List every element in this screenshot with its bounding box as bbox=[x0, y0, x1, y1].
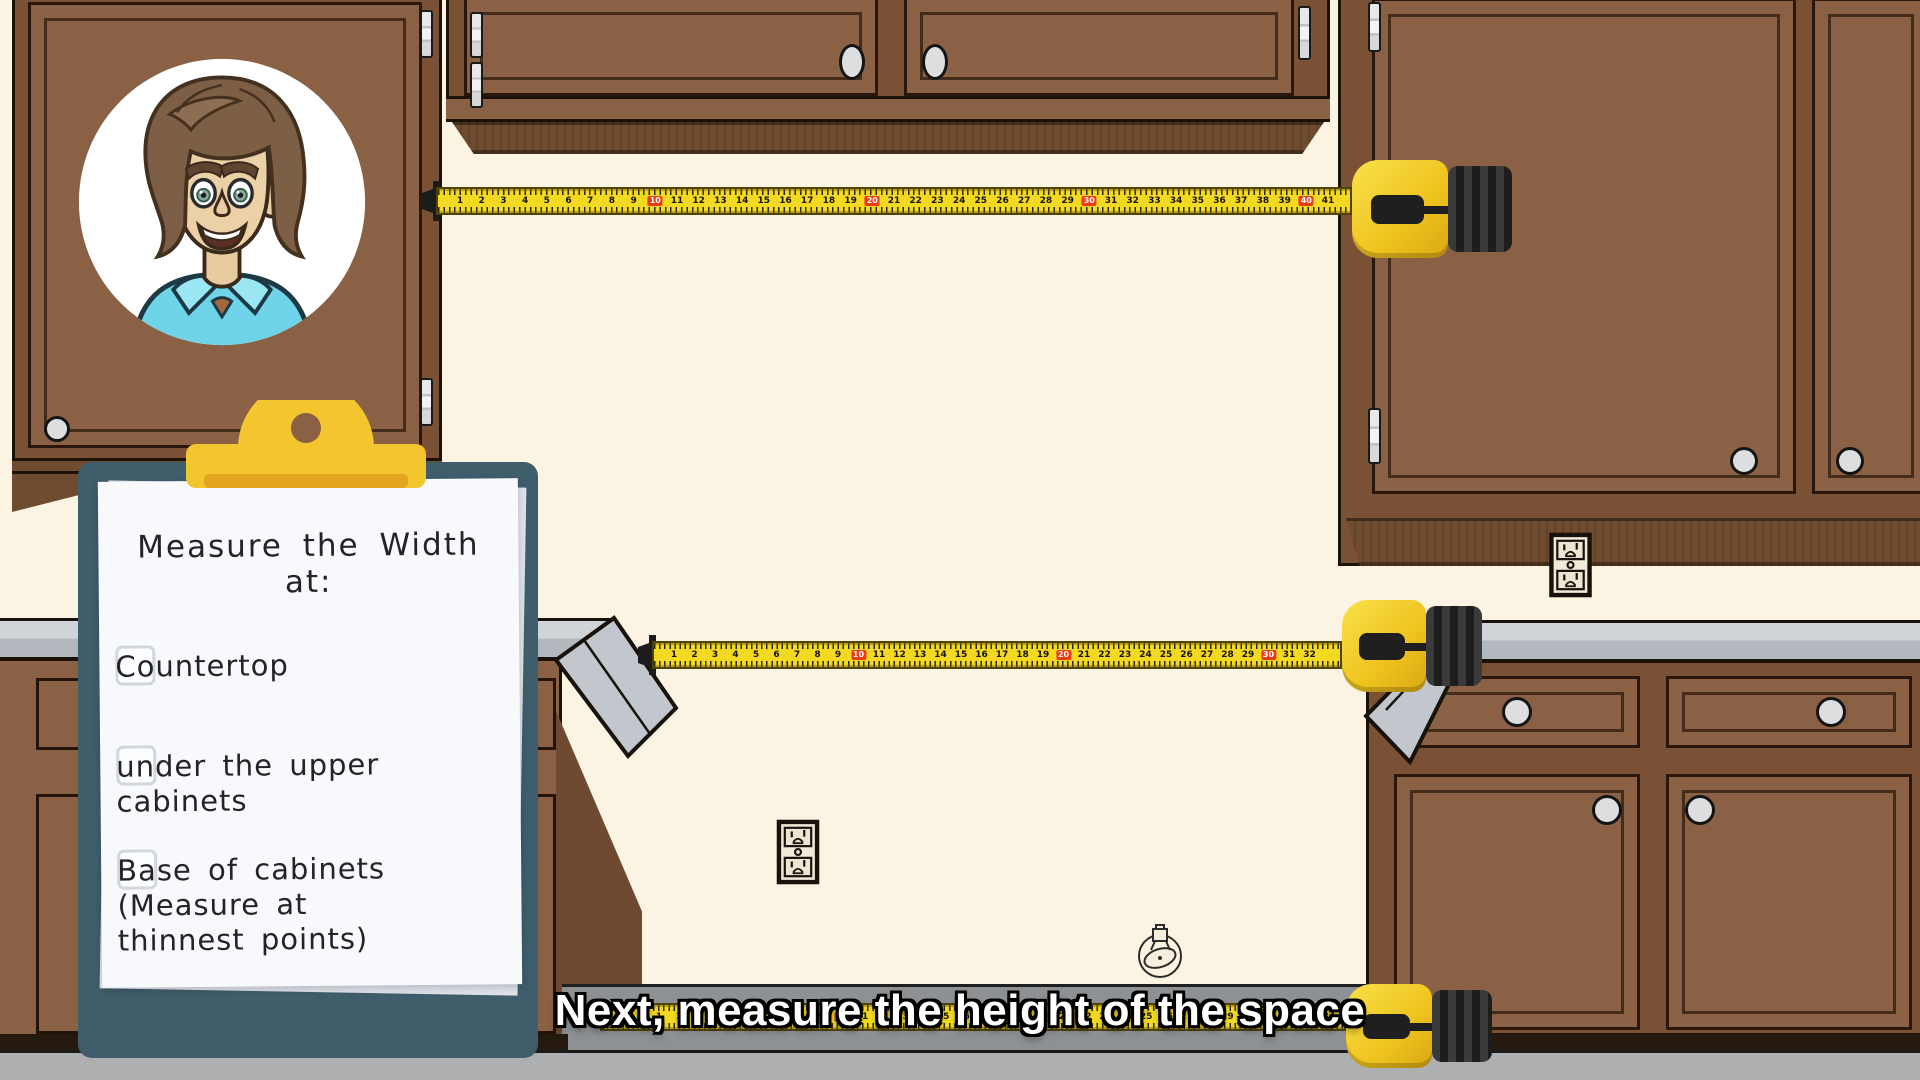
subtitle-caption: Next, measure the height of the space bbox=[0, 986, 1920, 1036]
power-outlet bbox=[1548, 532, 1593, 598]
cabinet-hinge bbox=[1298, 6, 1311, 60]
center-upper-door-right-knob bbox=[922, 44, 948, 80]
upper-right-molding bbox=[1346, 518, 1920, 566]
upper-right-door-right-knob bbox=[1836, 447, 1864, 475]
upper-left-cabinet-knob bbox=[44, 416, 70, 442]
right-base-drawer-right bbox=[1666, 676, 1912, 748]
kitchen-measuring-scene: 1234567891011121314151617181920212223242… bbox=[0, 0, 1920, 1080]
right-base-drawer-right-knob bbox=[1816, 697, 1846, 727]
tape-measure-blade-upper: 1234567891011121314151617181920212223242… bbox=[436, 187, 1352, 215]
checklist-item-label: Base of cabinets (Measure at thinnest po… bbox=[117, 851, 386, 958]
center-upper-door-left-knob bbox=[839, 44, 865, 80]
upper-right-door-right bbox=[1812, 0, 1920, 494]
center-upper-door-right bbox=[904, 0, 1294, 96]
right-base-door-left-knob bbox=[1592, 795, 1622, 825]
left-counter-bevel bbox=[552, 612, 682, 762]
clipboard-clip bbox=[176, 400, 436, 496]
checklist-item-label: Countertop bbox=[115, 648, 289, 684]
checklist-item: Base of cabinets (Measure at thinnest po… bbox=[117, 850, 515, 853]
power-outlet bbox=[776, 816, 820, 888]
tape-case-clip bbox=[1371, 195, 1424, 223]
tape-measure-case-grip bbox=[1426, 606, 1482, 686]
cabinet-hinge bbox=[1368, 2, 1381, 52]
cabinet-hinge bbox=[1368, 408, 1381, 464]
presenter-avatar bbox=[76, 56, 368, 348]
center-upper-rail bbox=[446, 96, 1330, 122]
tape-case-clip bbox=[1359, 633, 1405, 660]
checklist-item: Countertop bbox=[115, 646, 513, 649]
right-base-drawer-left-knob bbox=[1502, 697, 1532, 727]
cabinet-hinge bbox=[420, 10, 433, 58]
upper-wall-tape-scale: 1234567891011121314151617181920212223242… bbox=[438, 189, 1350, 213]
checklist-title: Measure the Width at: bbox=[98, 526, 519, 602]
right-countertop bbox=[1460, 620, 1920, 662]
clipboard-paper: Measure the Width at: Countertop under t… bbox=[98, 478, 522, 988]
tape-measure-case bbox=[1342, 600, 1426, 692]
cabinet-hinge bbox=[470, 12, 483, 58]
upper-right-door-left-knob bbox=[1730, 447, 1758, 475]
center-upper-door-left bbox=[464, 0, 878, 96]
checklist-item: under the upper cabinets bbox=[116, 746, 514, 749]
tape-measure-doodle-icon bbox=[1128, 920, 1192, 984]
cabinet-hinge bbox=[470, 62, 483, 108]
tape-measure-case-grip bbox=[1448, 166, 1512, 252]
right-base-door-right-knob bbox=[1685, 795, 1715, 825]
countertop-tape-scale: 1234567891011121314151617181920212223242… bbox=[654, 643, 1340, 667]
tape-measure-case bbox=[1352, 160, 1448, 258]
checklist-item-label: under the upper cabinets bbox=[116, 747, 380, 819]
tape-measure-blade-countertop: 1234567891011121314151617181920212223242… bbox=[652, 641, 1342, 669]
center-upper-molding bbox=[452, 122, 1324, 154]
